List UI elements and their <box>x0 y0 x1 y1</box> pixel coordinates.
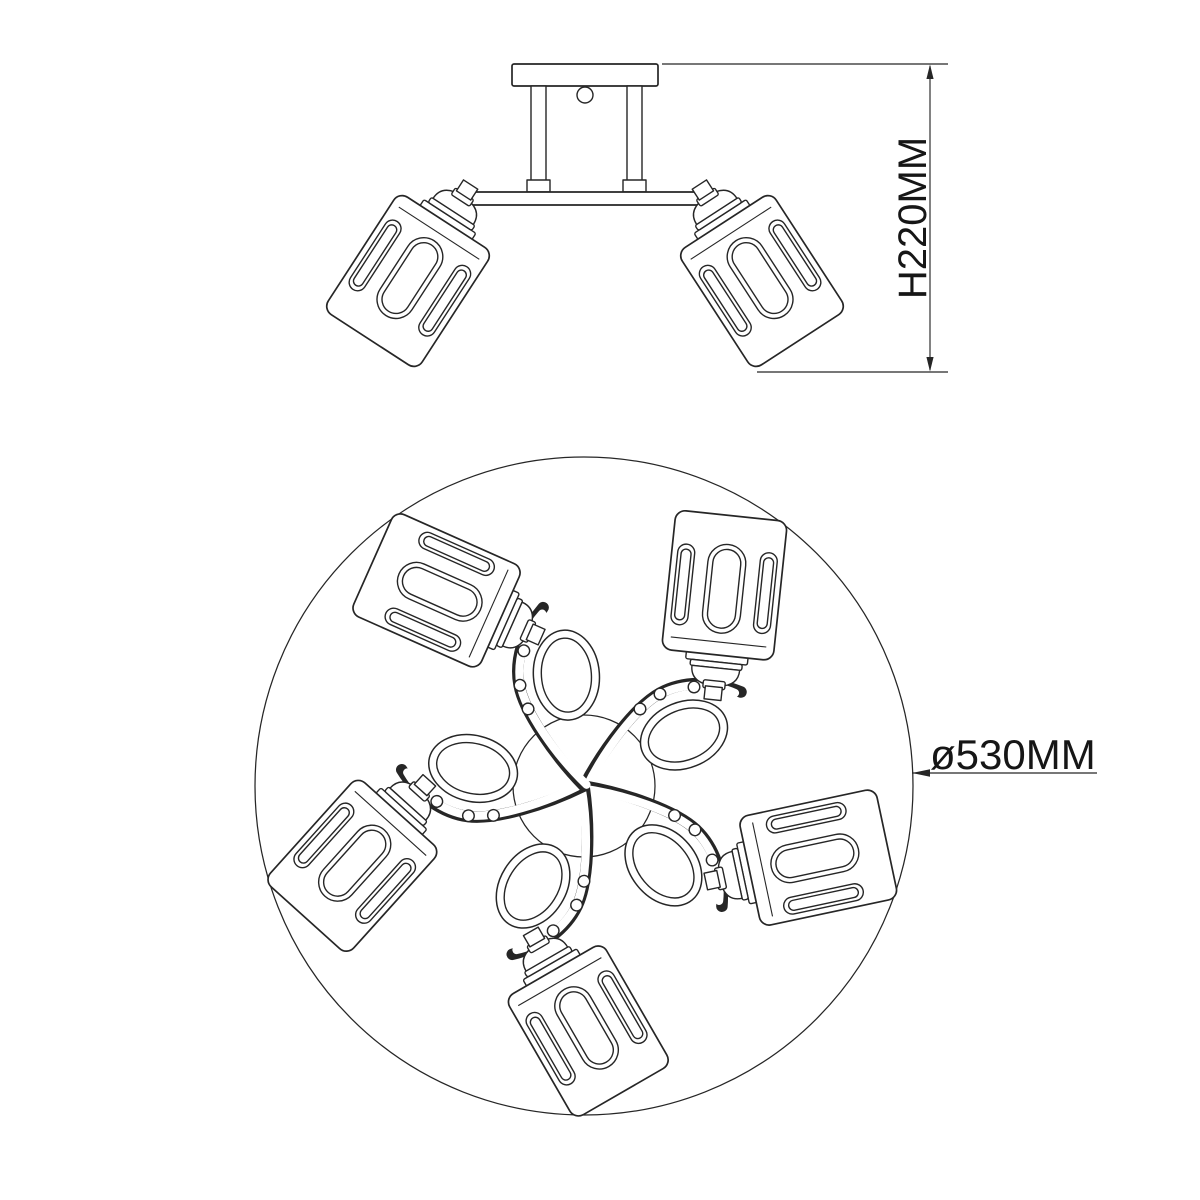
drawing-canvas: H220MM ø530MM <box>0 0 1200 1200</box>
front-view <box>323 64 847 370</box>
mounting-rod-left <box>531 86 546 186</box>
rod-foot-right <box>623 180 646 192</box>
plan-arm-unit-1 <box>584 510 788 788</box>
arrow-down-icon <box>926 357 933 372</box>
front-lamp-shade-right <box>652 154 847 370</box>
rod-foot-left <box>527 180 550 192</box>
height-dimension-label: H220MM <box>891 137 935 299</box>
front-lamp-shade-left <box>323 154 518 370</box>
plan-view <box>255 457 913 1129</box>
plan-arm-unit-2 <box>582 701 909 981</box>
ceiling-lamp-technical-drawing: H220MM ø530MM <box>0 0 1200 1200</box>
mounting-rod-right <box>627 86 642 186</box>
canopy-screw-knob <box>577 87 593 103</box>
support-bar <box>436 192 734 205</box>
diameter-dimension-label: ø530MM <box>930 731 1096 778</box>
arrow-left-icon <box>912 769 930 776</box>
ceiling-canopy-plate <box>512 64 658 86</box>
arrow-up-icon <box>926 65 933 80</box>
diameter-dimension: ø530MM <box>912 731 1097 778</box>
